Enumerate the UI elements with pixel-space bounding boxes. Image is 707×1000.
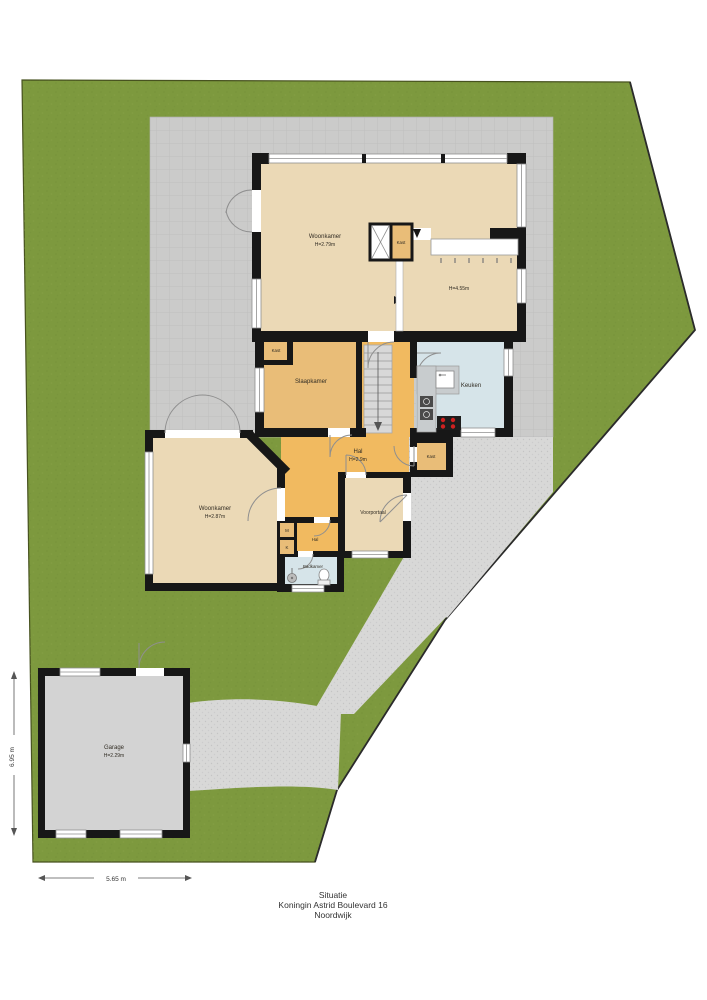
label-hal-height: H=2.9m [349, 457, 367, 463]
kast-shaft-box [370, 224, 412, 260]
label-meterkast: M [285, 528, 289, 533]
label-eethoek-height: H=4.55m [449, 286, 469, 292]
floorplan-canvas: Woonkamer H=2.79m H=4.55m Kast Kast Slaa… [0, 0, 707, 1000]
label-kast-woonkamer: Kast [397, 240, 407, 245]
label-kast-slaapkamer: Kast [272, 348, 282, 353]
label-hal: Hal [353, 449, 362, 455]
label-keuken: Keuken [461, 383, 481, 389]
kitchen-appliance-2 [420, 409, 433, 420]
kitchen-sink [436, 371, 454, 388]
toilet [318, 569, 330, 585]
partition-woonkamer [396, 258, 403, 331]
kitchen-stove [437, 416, 461, 430]
garage-floor [42, 672, 186, 832]
label-badkamer: Badkamer [303, 564, 324, 569]
room-slaapkamer [261, 340, 361, 432]
footer-title: Situatie [319, 890, 348, 900]
situation-plan: Woonkamer H=2.79m H=4.55m Kast Kast Slaa… [0, 0, 707, 1000]
label-slaapkamer: Slaapkamer [295, 379, 327, 385]
label-woonkamer-beneden-height: H=2.87m [205, 514, 225, 520]
label-kast-hal: Kast [427, 454, 437, 459]
kitchen-appliance-1 [420, 396, 433, 407]
label-dim-garage-diepte: 6.95 m [9, 747, 16, 767]
label-kast-k: K [286, 545, 289, 550]
garage [38, 642, 190, 838]
label-garage-height: H=2.29m [104, 753, 124, 759]
label-dim-garage-breedte: 5.65 m [106, 876, 126, 883]
footer-address: Koningin Astrid Boulevard 16 [278, 900, 387, 910]
label-woonkamer-boven-height: H=2.79m [315, 242, 335, 248]
footer-city: Noordwijk [314, 910, 352, 920]
label-voorportaal: Voorportaal [360, 510, 386, 516]
label-woonkamer-beneden: Woonkamer [199, 506, 231, 512]
label-garage: Garage [104, 745, 125, 751]
label-woonkamer-boven: Woonkamer [309, 234, 341, 240]
label-hal-klein: Hal [312, 537, 319, 542]
curved-path-texture [188, 699, 341, 791]
